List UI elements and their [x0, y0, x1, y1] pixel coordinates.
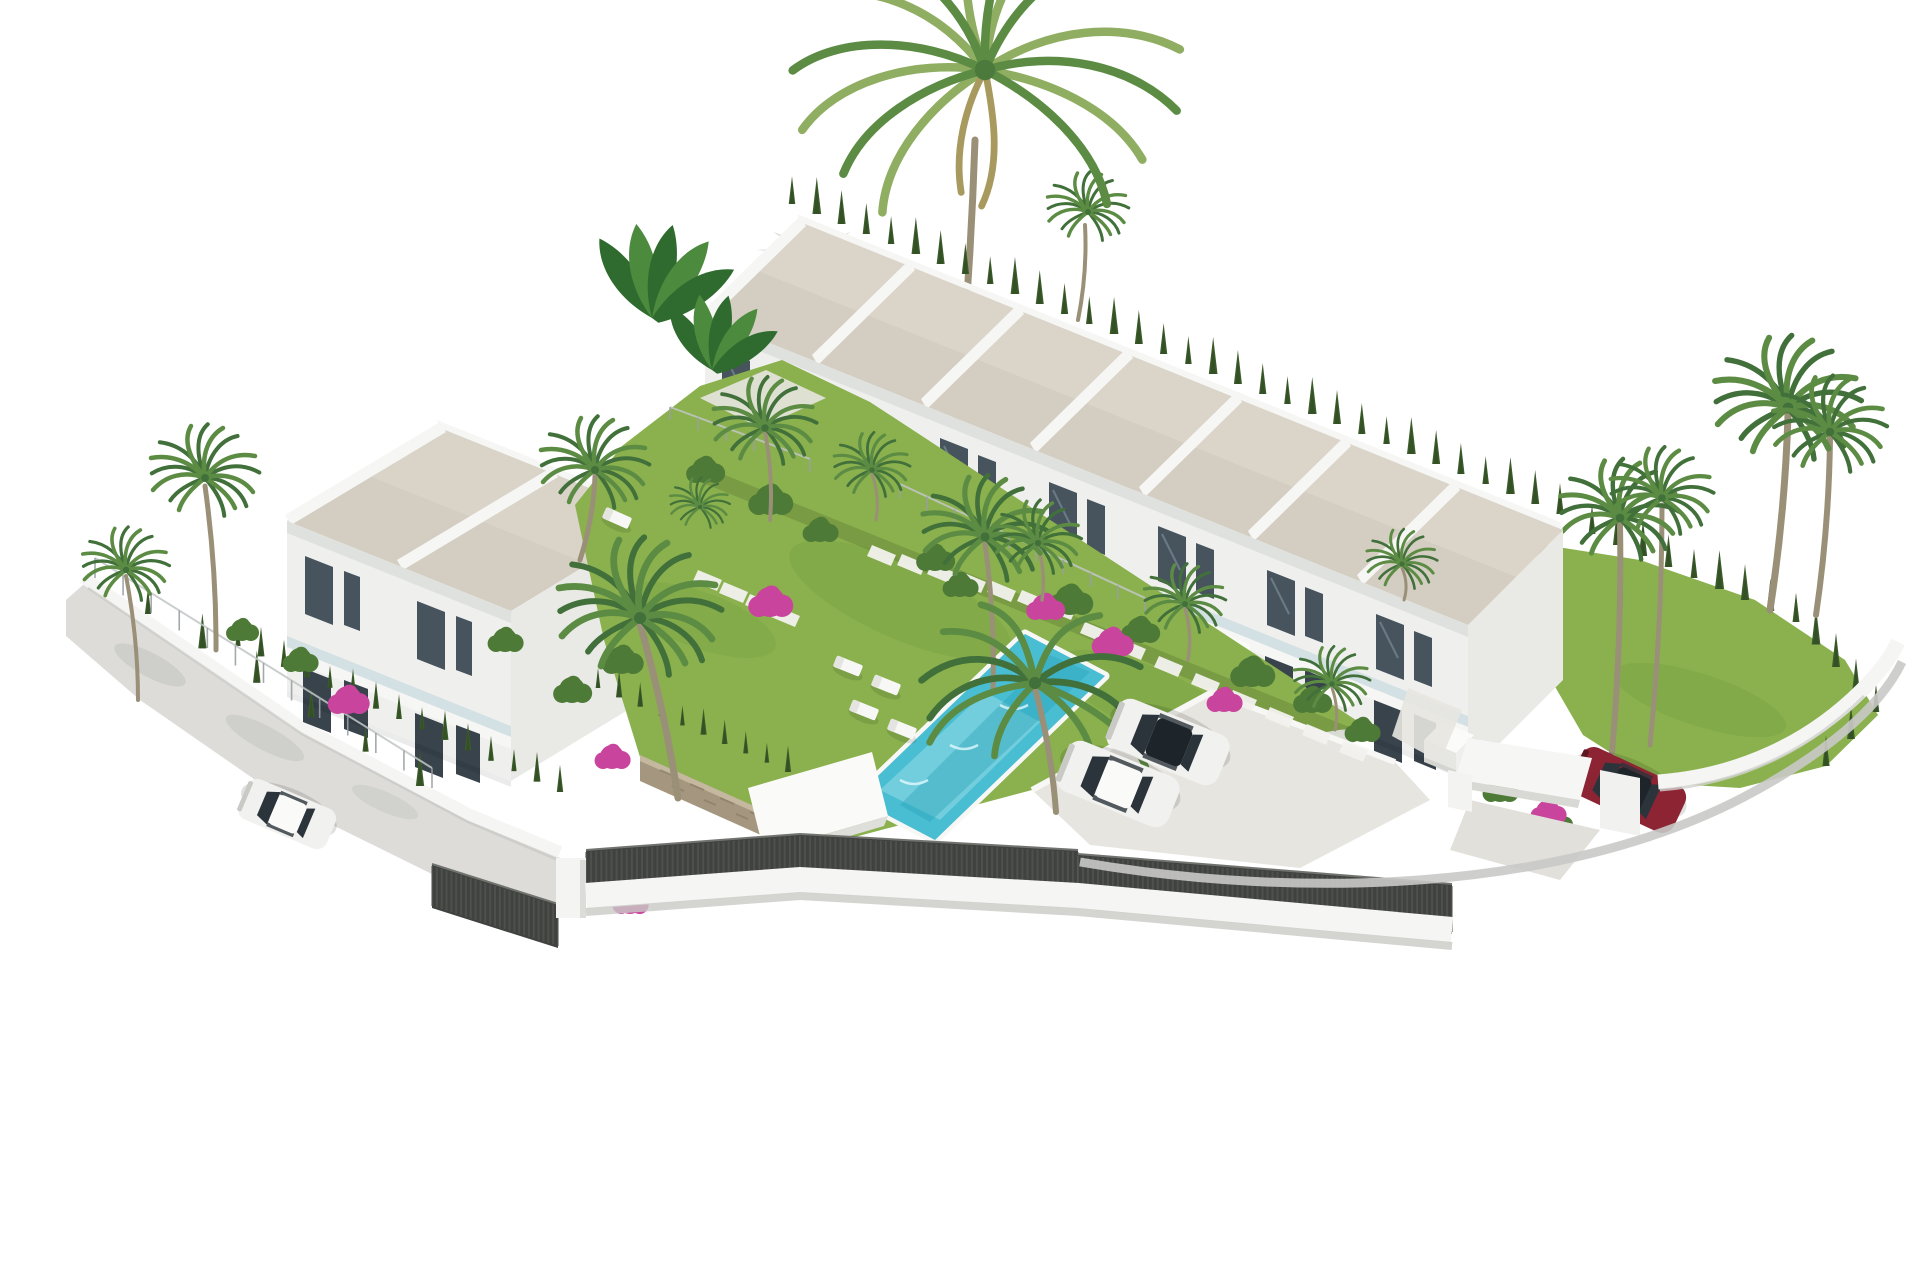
cypress-tree — [1259, 363, 1266, 394]
cypress-tree — [912, 217, 921, 254]
cypress-tree — [1284, 376, 1291, 404]
cypress-tree — [1160, 323, 1167, 354]
cypress-tree — [812, 177, 821, 214]
cypress-tree — [557, 765, 563, 792]
cypress-tree — [1715, 550, 1724, 589]
cypress-tree — [1358, 403, 1365, 434]
cypress-tree — [1407, 417, 1416, 454]
palm-trunk — [1816, 438, 1830, 615]
tall-fan-palms — [1553, 319, 1897, 569]
cypress-tree — [1011, 257, 1020, 294]
cypress-tree — [1793, 594, 1800, 622]
cypress-tree — [1432, 430, 1440, 464]
cypress-tree — [1086, 296, 1093, 324]
cypress-tree — [789, 176, 796, 204]
cypress-tree — [1691, 549, 1698, 578]
cypress-tree — [863, 203, 870, 234]
cypress-tree — [1506, 457, 1515, 494]
cypress-tree — [1061, 283, 1068, 314]
cypress-tree — [1333, 390, 1341, 424]
cypress-tree — [1832, 633, 1840, 667]
bougainvillea-bush — [595, 744, 631, 769]
green-shrub — [226, 618, 259, 641]
cypress-tree — [1185, 336, 1192, 364]
cypress-tree — [1383, 416, 1390, 444]
cypress-tree — [888, 216, 895, 244]
cypress-tree — [1457, 443, 1464, 474]
cypress-tree — [198, 613, 206, 648]
development-render-canvas — [0, 0, 1920, 1280]
cypress-tree — [937, 230, 945, 264]
entrance-wall — [1600, 770, 1640, 836]
tall-feather-palm — [766, 0, 1203, 224]
palm-trunk — [1770, 415, 1788, 610]
palm-trunk — [205, 486, 216, 650]
cypress-tree — [1110, 297, 1119, 334]
fan-palm — [1042, 162, 1136, 246]
palm-trunk — [1078, 225, 1086, 320]
cypress-tree — [1036, 270, 1044, 304]
cypress-tree — [1531, 470, 1539, 504]
cypress-tree — [1234, 350, 1242, 384]
cypress-tree — [1209, 337, 1218, 374]
cypress-tree — [1308, 377, 1317, 414]
cypress-tree — [1556, 483, 1563, 514]
cypress-tree — [1135, 310, 1143, 344]
cypress-tree — [838, 190, 846, 224]
cypress-tree — [1741, 564, 1749, 600]
site-plan-render — [0, 0, 1920, 1280]
cypress-tree — [1482, 456, 1489, 484]
entrance-pillar — [1448, 770, 1472, 812]
cypress-tree — [987, 256, 994, 284]
